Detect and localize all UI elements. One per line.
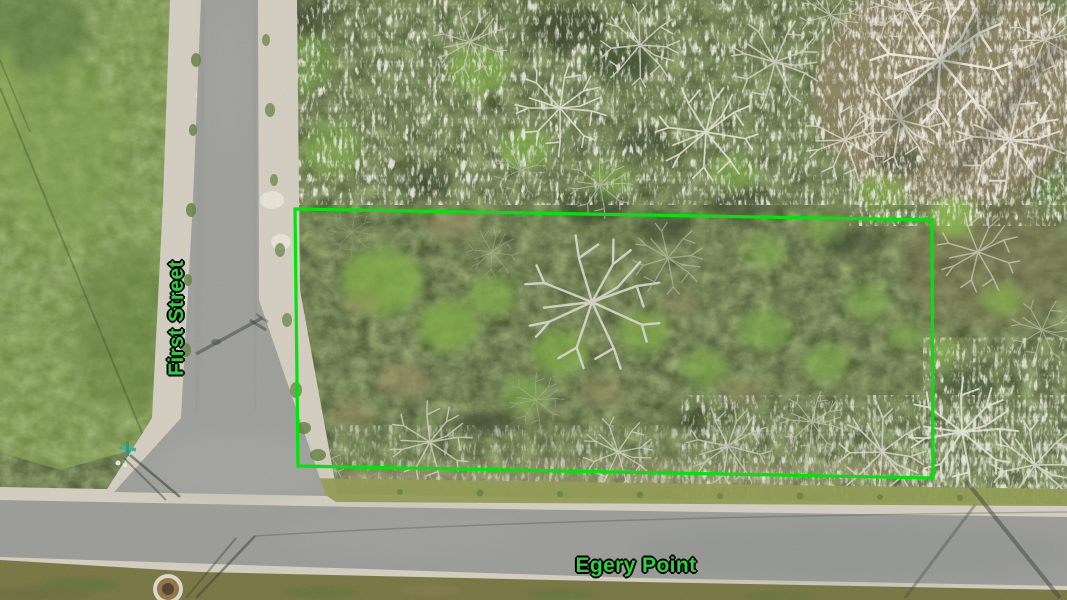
aerial-photo: First Street Egery Point: [0, 0, 1067, 600]
photo-grain: [0, 0, 1067, 600]
street-label-egery-point: Egery Point: [575, 554, 696, 578]
street-label-first-street: First Street: [165, 260, 189, 376]
aerial-photo-scene: [0, 0, 1067, 600]
